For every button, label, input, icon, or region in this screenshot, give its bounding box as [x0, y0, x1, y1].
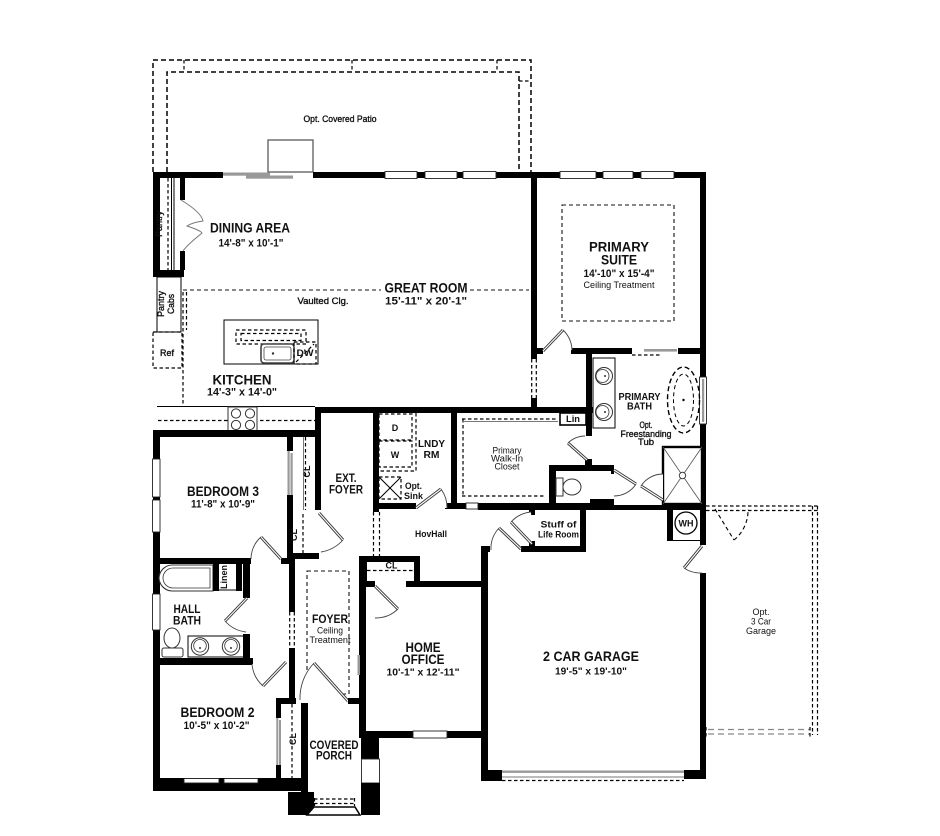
svg-text:CL: CL	[302, 465, 312, 477]
svg-text:BEDROOM 3: BEDROOM 3	[187, 484, 259, 499]
svg-text:14'-8" x 10'-1": 14'-8" x 10'-1"	[219, 238, 284, 250]
svg-text:WH: WH	[679, 519, 694, 529]
svg-text:Ceiling Treatment: Ceiling Treatment	[584, 280, 655, 290]
svg-text:BATH: BATH	[627, 401, 652, 413]
svg-text:Tub: Tub	[638, 437, 654, 447]
svg-text:Treatment: Treatment	[310, 635, 351, 645]
svg-text:Life Room: Life Room	[538, 530, 579, 540]
svg-text:CL: CL	[288, 733, 298, 745]
svg-text:Cabs: Cabs	[166, 294, 176, 314]
svg-text:2 CAR GARAGE: 2 CAR GARAGE	[543, 648, 639, 664]
svg-text:Opt.: Opt.	[753, 607, 770, 617]
svg-text:Closet: Closet	[495, 462, 520, 472]
svg-text:HovHall: HovHall	[415, 529, 447, 539]
svg-text:3 Car: 3 Car	[751, 617, 771, 627]
svg-text:FOYER: FOYER	[312, 612, 348, 626]
svg-text:BATH: BATH	[173, 614, 201, 628]
svg-text:DW: DW	[297, 348, 315, 358]
svg-text:11'-8" x 10'-9": 11'-8" x 10'-9"	[191, 499, 255, 511]
svg-text:14'-10" x 15'-4": 14'-10" x 15'-4"	[584, 268, 655, 280]
svg-text:Opt. Covered Patio: Opt. Covered Patio	[304, 114, 377, 124]
svg-text:RM: RM	[424, 449, 440, 461]
svg-text:Vaulted Clg.: Vaulted Clg.	[298, 296, 349, 306]
svg-text:Ceiling: Ceiling	[317, 626, 343, 636]
svg-text:Stuff of: Stuff of	[541, 520, 578, 530]
svg-text:D: D	[392, 423, 399, 433]
svg-text:CL: CL	[386, 561, 398, 571]
svg-text:BEDROOM 2: BEDROOM 2	[181, 705, 255, 720]
svg-text:DINING AREA: DINING AREA	[210, 220, 290, 236]
svg-text:Garage: Garage	[746, 626, 776, 636]
svg-text:PORCH: PORCH	[316, 749, 352, 763]
svg-text:FOYER: FOYER	[329, 483, 363, 497]
svg-text:KITCHEN: KITCHEN	[213, 372, 272, 388]
svg-text:GREAT ROOM: GREAT ROOM	[385, 280, 468, 296]
svg-text:Ref: Ref	[160, 348, 174, 358]
svg-text:CL: CL	[289, 529, 299, 541]
svg-text:Opt.: Opt.	[405, 481, 422, 491]
svg-text:Linen: Linen	[219, 565, 229, 589]
svg-text:10'-5" x 10'-2": 10'-5" x 10'-2"	[184, 720, 250, 732]
svg-text:Pantry: Pantry	[154, 211, 164, 237]
svg-text:Pantry: Pantry	[156, 291, 166, 317]
svg-text:Lin: Lin	[566, 414, 580, 424]
svg-text:W: W	[391, 450, 400, 460]
svg-text:19'-5" x 19'-10": 19'-5" x 19'-10"	[555, 666, 627, 678]
svg-text:14'-3" x 14'-0": 14'-3" x 14'-0"	[207, 387, 277, 399]
svg-text:SUITE: SUITE	[601, 253, 637, 268]
svg-text:Sink: Sink	[404, 491, 424, 501]
svg-text:OFFICE: OFFICE	[402, 652, 445, 667]
svg-text:10'-1" x 12'-11": 10'-1" x 12'-11"	[387, 667, 460, 679]
svg-text:15'-11" x 20'-1": 15'-11" x 20'-1"	[385, 296, 467, 308]
